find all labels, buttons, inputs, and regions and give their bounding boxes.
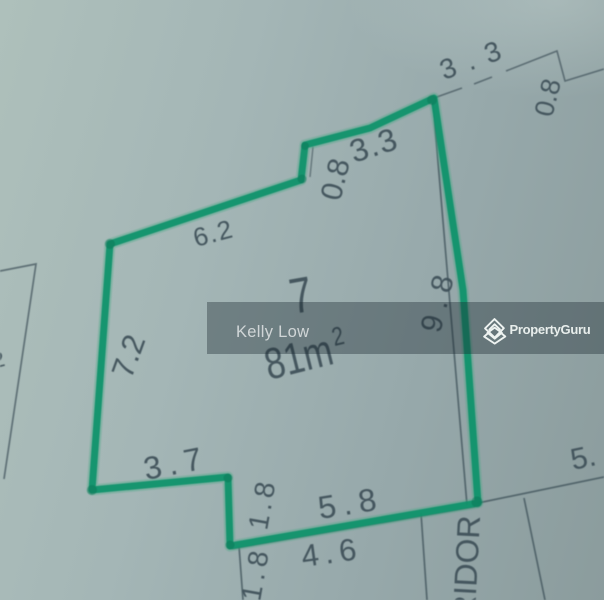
svg-text:1.8: 1.8 bbox=[235, 543, 275, 600]
svg-text:CORRIDOR: CORRIDOR bbox=[442, 515, 487, 600]
svg-text:2: 2 bbox=[0, 346, 7, 373]
svg-text:5.: 5. bbox=[568, 439, 599, 476]
svg-text:0.8: 0.8 bbox=[315, 155, 357, 203]
svg-text:7.2: 7.2 bbox=[105, 330, 153, 382]
svg-text:3.3: 3.3 bbox=[435, 31, 516, 86]
svg-text:0.8: 0.8 bbox=[529, 76, 567, 120]
svg-text:4.6: 4.6 bbox=[299, 531, 364, 574]
svg-text:1.8: 1.8 bbox=[242, 475, 282, 532]
